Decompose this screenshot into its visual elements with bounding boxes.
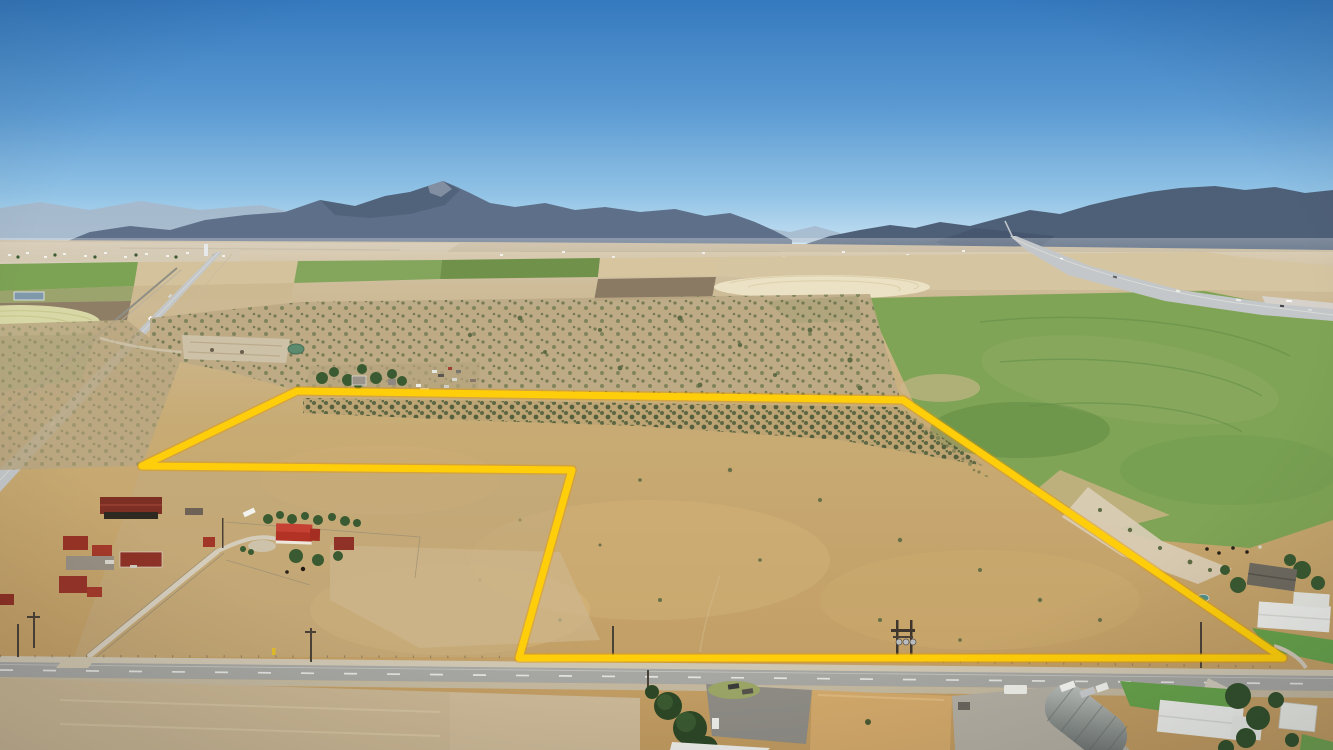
photo-canvas	[0, 0, 1333, 750]
aerial-parcel-photo	[0, 0, 1333, 750]
vignette	[0, 0, 1333, 750]
